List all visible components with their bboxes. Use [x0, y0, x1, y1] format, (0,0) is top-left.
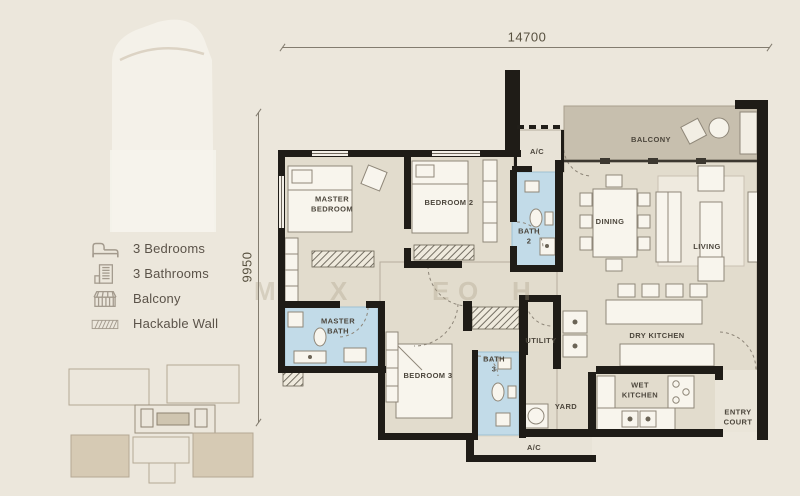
key-plan	[69, 365, 253, 483]
watermark-letter: E	[432, 276, 451, 307]
room-label-utility: UTILITY	[525, 336, 556, 346]
legend-item-balcony: Balcony	[90, 286, 218, 311]
legend-label: Hackable Wall	[133, 316, 218, 331]
room-label-master-bath: MASTER BATH	[313, 316, 363, 336]
room-label-bedroom-3: BEDROOM 3	[400, 371, 456, 381]
legend-label: Balcony	[133, 291, 181, 306]
dimension-width-label: 14700	[508, 30, 547, 45]
room-label-living: LIVING	[693, 242, 720, 252]
room-label-bath-3: BATH 3	[482, 354, 506, 374]
room-label-dining: DINING	[596, 217, 625, 227]
room-label-bedroom-2: BEDROOM 2	[424, 198, 473, 208]
legend: 3 Bedrooms 3 Bathrooms Balcony	[90, 236, 218, 336]
bathroom-icon	[90, 263, 120, 285]
room-label-balcony: BALCONY	[631, 135, 671, 145]
room-label-dry-kitchen: DRY KITCHEN	[629, 331, 684, 341]
room-label-ac-bottom: A/C	[527, 443, 541, 453]
legend-label: 3 Bathrooms	[133, 266, 209, 281]
watermark-letter: O	[458, 276, 480, 307]
room-label-entry-court: ENTRY COURT	[716, 407, 760, 427]
dimension-line-left	[258, 112, 259, 423]
room-label-wet-kitchen: WET KITCHEN	[616, 380, 664, 400]
legend-item-hackable-wall: Hackable Wall	[90, 311, 218, 336]
room-label-master-bedroom: MASTER BEDROOM	[301, 194, 363, 214]
room-label-yard: YARD	[555, 402, 577, 412]
dimension-line-top	[282, 47, 770, 48]
legend-item-bedrooms: 3 Bedrooms	[90, 236, 218, 261]
watermark-letter: H	[512, 276, 533, 307]
dimension-height-label: 9950	[240, 252, 255, 283]
legend-label: 3 Bedrooms	[133, 241, 205, 256]
balcony-icon	[90, 288, 120, 310]
bed-icon	[90, 238, 120, 260]
room-label-ac-top: A/C	[530, 147, 544, 157]
hackable-wall-icon	[90, 313, 120, 335]
floorplan-page: 14700 9950 3 Bedrooms 3 Bathrooms	[0, 0, 800, 496]
watermark-letter: X	[330, 276, 349, 307]
room-label-bath-2: BATH 2	[517, 226, 541, 246]
legend-item-bathrooms: 3 Bathrooms	[90, 261, 218, 286]
balcony-area	[564, 106, 757, 160]
